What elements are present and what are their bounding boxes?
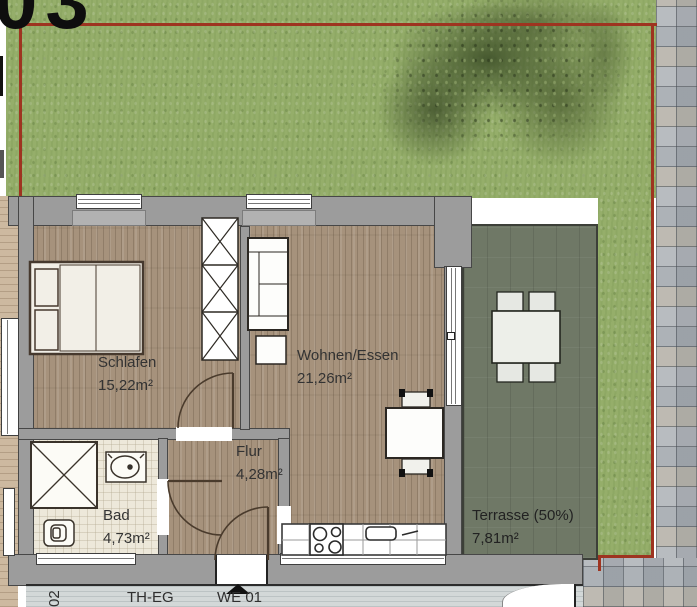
terrace-table (492, 292, 560, 382)
room-label-bad: Bad (103, 507, 130, 524)
kitchen-counter (282, 524, 446, 555)
terrace-chair (529, 292, 555, 311)
wardrobe (202, 218, 238, 360)
room-area-terrasse: 7,81m² (472, 530, 519, 547)
shower (31, 442, 97, 508)
room-area-wohnen: 21,26m² (297, 370, 352, 387)
room-label-schlafen: Schlafen (98, 354, 156, 371)
room-label-flur: Flur (236, 443, 262, 460)
dining-chair (399, 459, 433, 477)
bathroom-door-swing (168, 481, 222, 535)
adjacent-unit-label: 02 (46, 590, 63, 607)
entrance-door-swing (215, 507, 268, 560)
bed (30, 262, 143, 354)
dining-chair (399, 389, 433, 407)
terrace-chair (529, 363, 555, 382)
dining-table (386, 408, 443, 458)
room-area-schlafen: 15,22m² (98, 377, 153, 394)
room-area-flur: 4,28m² (236, 466, 283, 483)
plot-number-partial: 03 (0, 0, 97, 47)
room-label-terrasse: Terrasse (50%) (472, 507, 574, 524)
terrace-chair (497, 292, 523, 311)
unit-entrance-label: WE 01 (217, 589, 262, 606)
room-area-bad: 4,73m² (103, 530, 150, 547)
room-label-wohnen: Wohnen/Essen (297, 347, 398, 364)
washbasin (106, 452, 146, 482)
toilet (44, 520, 74, 546)
sofa (248, 238, 288, 330)
bedroom-door-swing (178, 373, 233, 428)
cooktop (310, 524, 343, 555)
side-table (256, 336, 286, 364)
floor-plan: Schlafen 15,22m² Wohnen/Essen 21,26m² Ba… (0, 0, 697, 607)
terrace-chair (497, 363, 523, 382)
stairwell-label: TH-EG (127, 589, 174, 606)
